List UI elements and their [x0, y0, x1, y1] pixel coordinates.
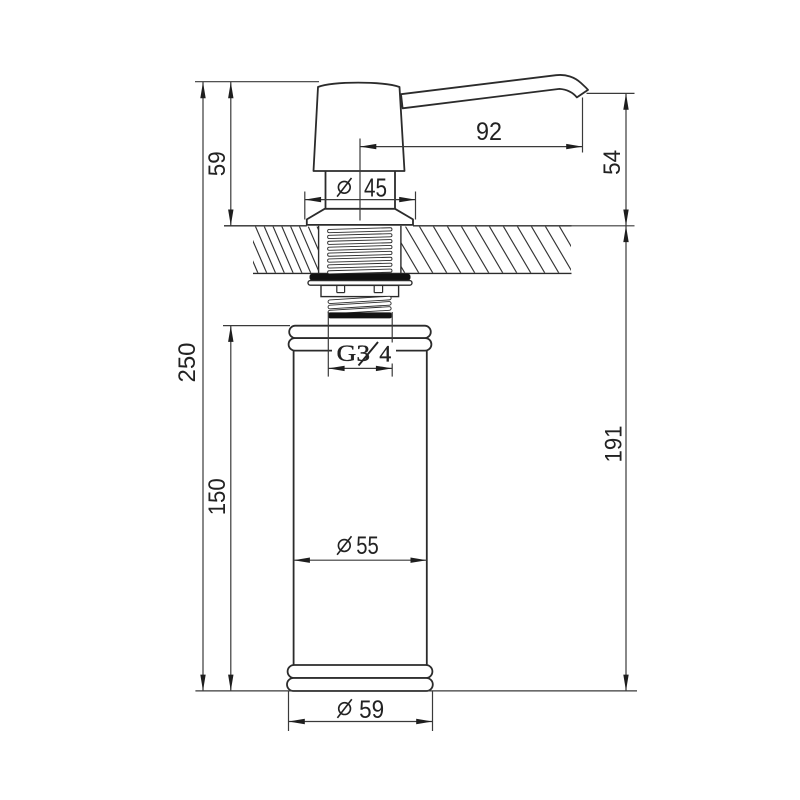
svg-text:191: 191	[600, 426, 627, 463]
svg-text:59: 59	[204, 151, 231, 176]
svg-text:55: 55	[356, 532, 379, 560]
svg-text:150: 150	[204, 478, 231, 515]
svg-text:54: 54	[599, 150, 626, 175]
svg-text:45: 45	[364, 175, 387, 203]
svg-text:92: 92	[476, 118, 502, 146]
svg-text:4: 4	[379, 342, 391, 368]
svg-text:250: 250	[174, 343, 201, 383]
svg-text:59: 59	[359, 696, 384, 724]
svg-text:G3: G3	[337, 341, 371, 367]
